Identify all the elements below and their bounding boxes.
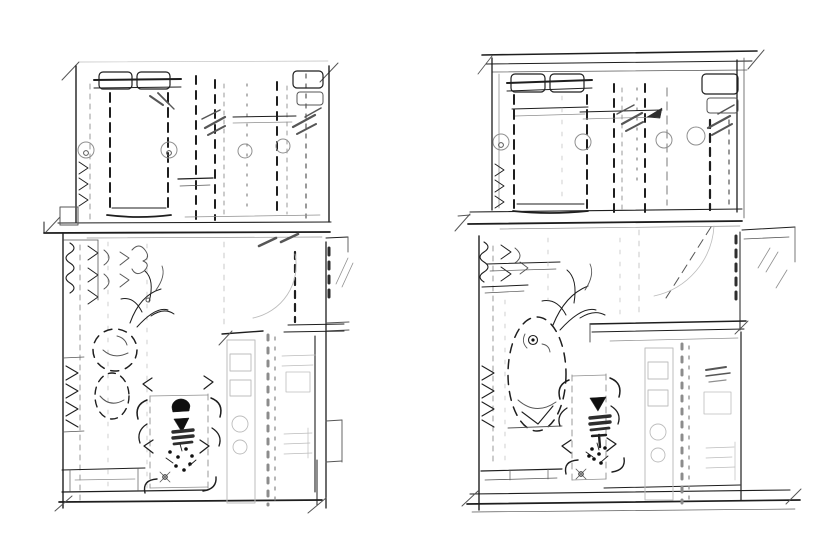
floor-plan-right xyxy=(455,50,801,512)
sketch-canvas xyxy=(0,0,830,555)
floor-plan-left xyxy=(44,61,353,513)
floor-plan-document xyxy=(0,0,830,555)
